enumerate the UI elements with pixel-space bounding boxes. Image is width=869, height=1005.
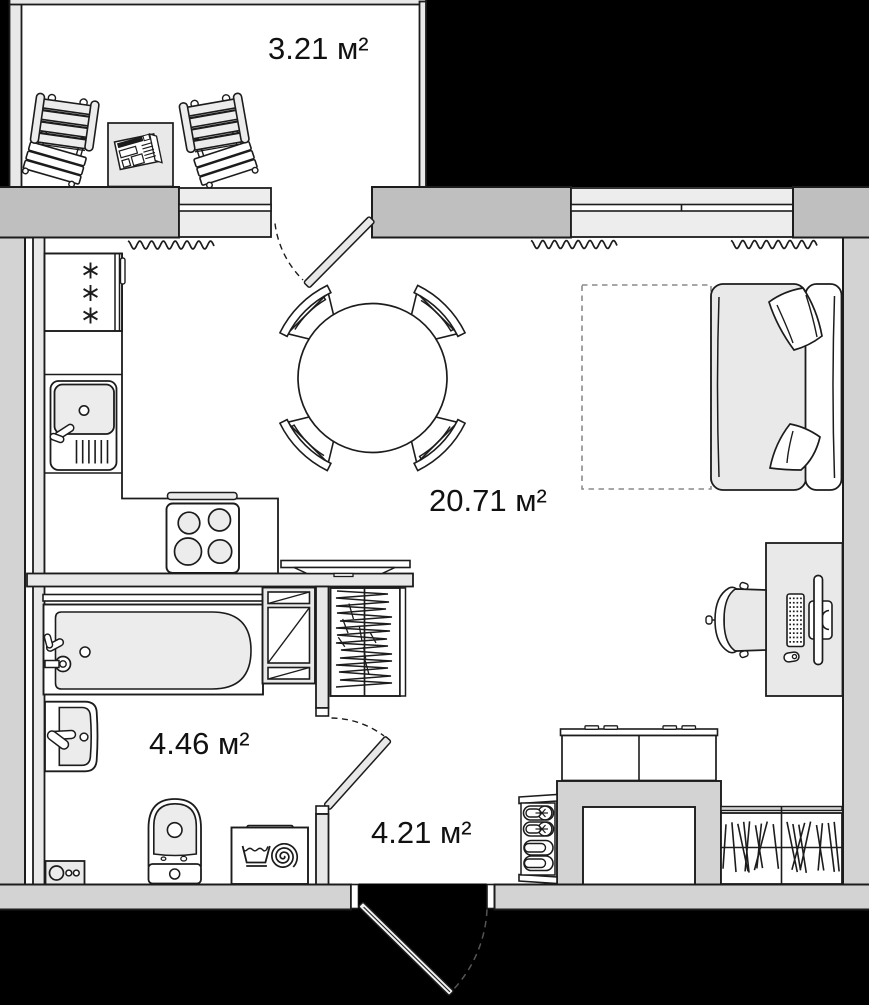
svg-text:20.71 м²: 20.71 м²	[429, 483, 547, 518]
svg-text:3.21 м²: 3.21 м²	[268, 31, 369, 66]
svg-text:4.46 м²: 4.46 м²	[149, 726, 250, 761]
svg-text:4.21 м²: 4.21 м²	[371, 815, 472, 850]
